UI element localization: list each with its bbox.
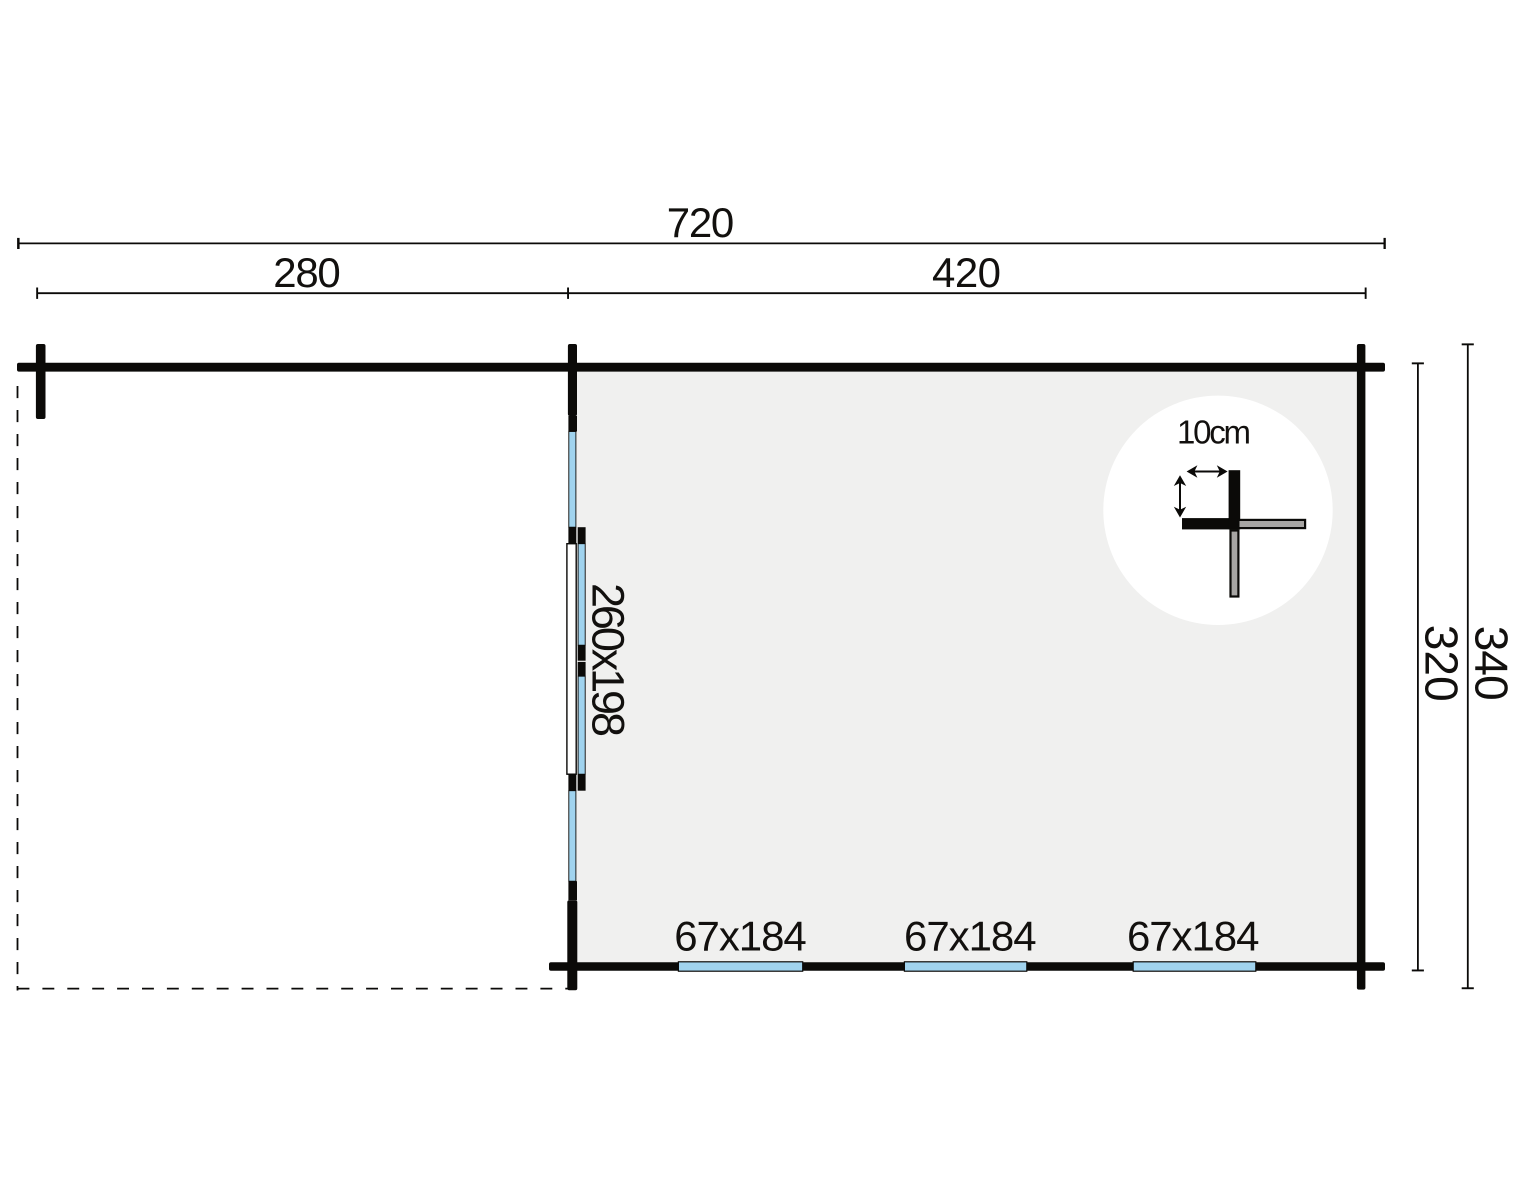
svg-text:10cm: 10cm xyxy=(1177,414,1251,451)
svg-text:420: 420 xyxy=(932,249,1001,296)
svg-text:340: 340 xyxy=(1466,626,1518,701)
svg-text:67x184: 67x184 xyxy=(904,913,1037,960)
svg-text:67x184: 67x184 xyxy=(674,913,807,960)
svg-text:320: 320 xyxy=(1416,625,1468,702)
svg-text:280: 280 xyxy=(273,249,341,296)
svg-text:720: 720 xyxy=(667,199,735,246)
svg-text:67x184: 67x184 xyxy=(1127,913,1260,960)
svg-text:260x198: 260x198 xyxy=(583,583,634,737)
